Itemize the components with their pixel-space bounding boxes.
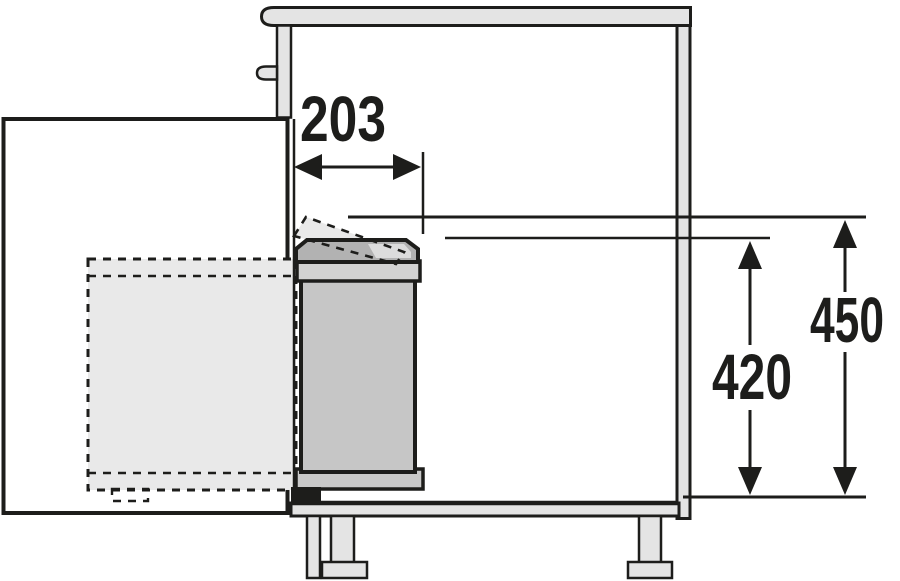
- dim-203-arrowhead-right: [393, 154, 421, 180]
- hinge-knob: [257, 67, 277, 80]
- cabinet-right-panel: [677, 26, 690, 519]
- cabinet-waste-bin-diagram: 203 420 450: [0, 0, 900, 581]
- dim-420-label: 420: [712, 341, 792, 413]
- dim-420-arrowhead-down: [738, 467, 762, 495]
- left-leg-foot: [322, 562, 367, 578]
- dim-203-arrowhead-left: [294, 154, 322, 180]
- diagram-canvas: 203 420 450: [0, 0, 900, 581]
- left-leg: [331, 516, 354, 563]
- waste-bin-body: [301, 279, 415, 472]
- dim-450-arrowhead-up: [833, 220, 857, 248]
- dim-203-label: 203: [300, 83, 386, 155]
- dim-450-arrowhead-down: [833, 467, 857, 495]
- dim-450-label: 450: [810, 284, 884, 356]
- cabinet-front-rail: [277, 26, 291, 118]
- countertop: [262, 8, 691, 26]
- bin-pivot-block: [291, 487, 321, 501]
- dim-420-arrowhead-up: [738, 241, 762, 269]
- front-leg-bar: [307, 516, 320, 578]
- bin-ghost-outline: [88, 259, 296, 490]
- right-leg-foot: [628, 562, 672, 578]
- right-leg: [639, 516, 661, 563]
